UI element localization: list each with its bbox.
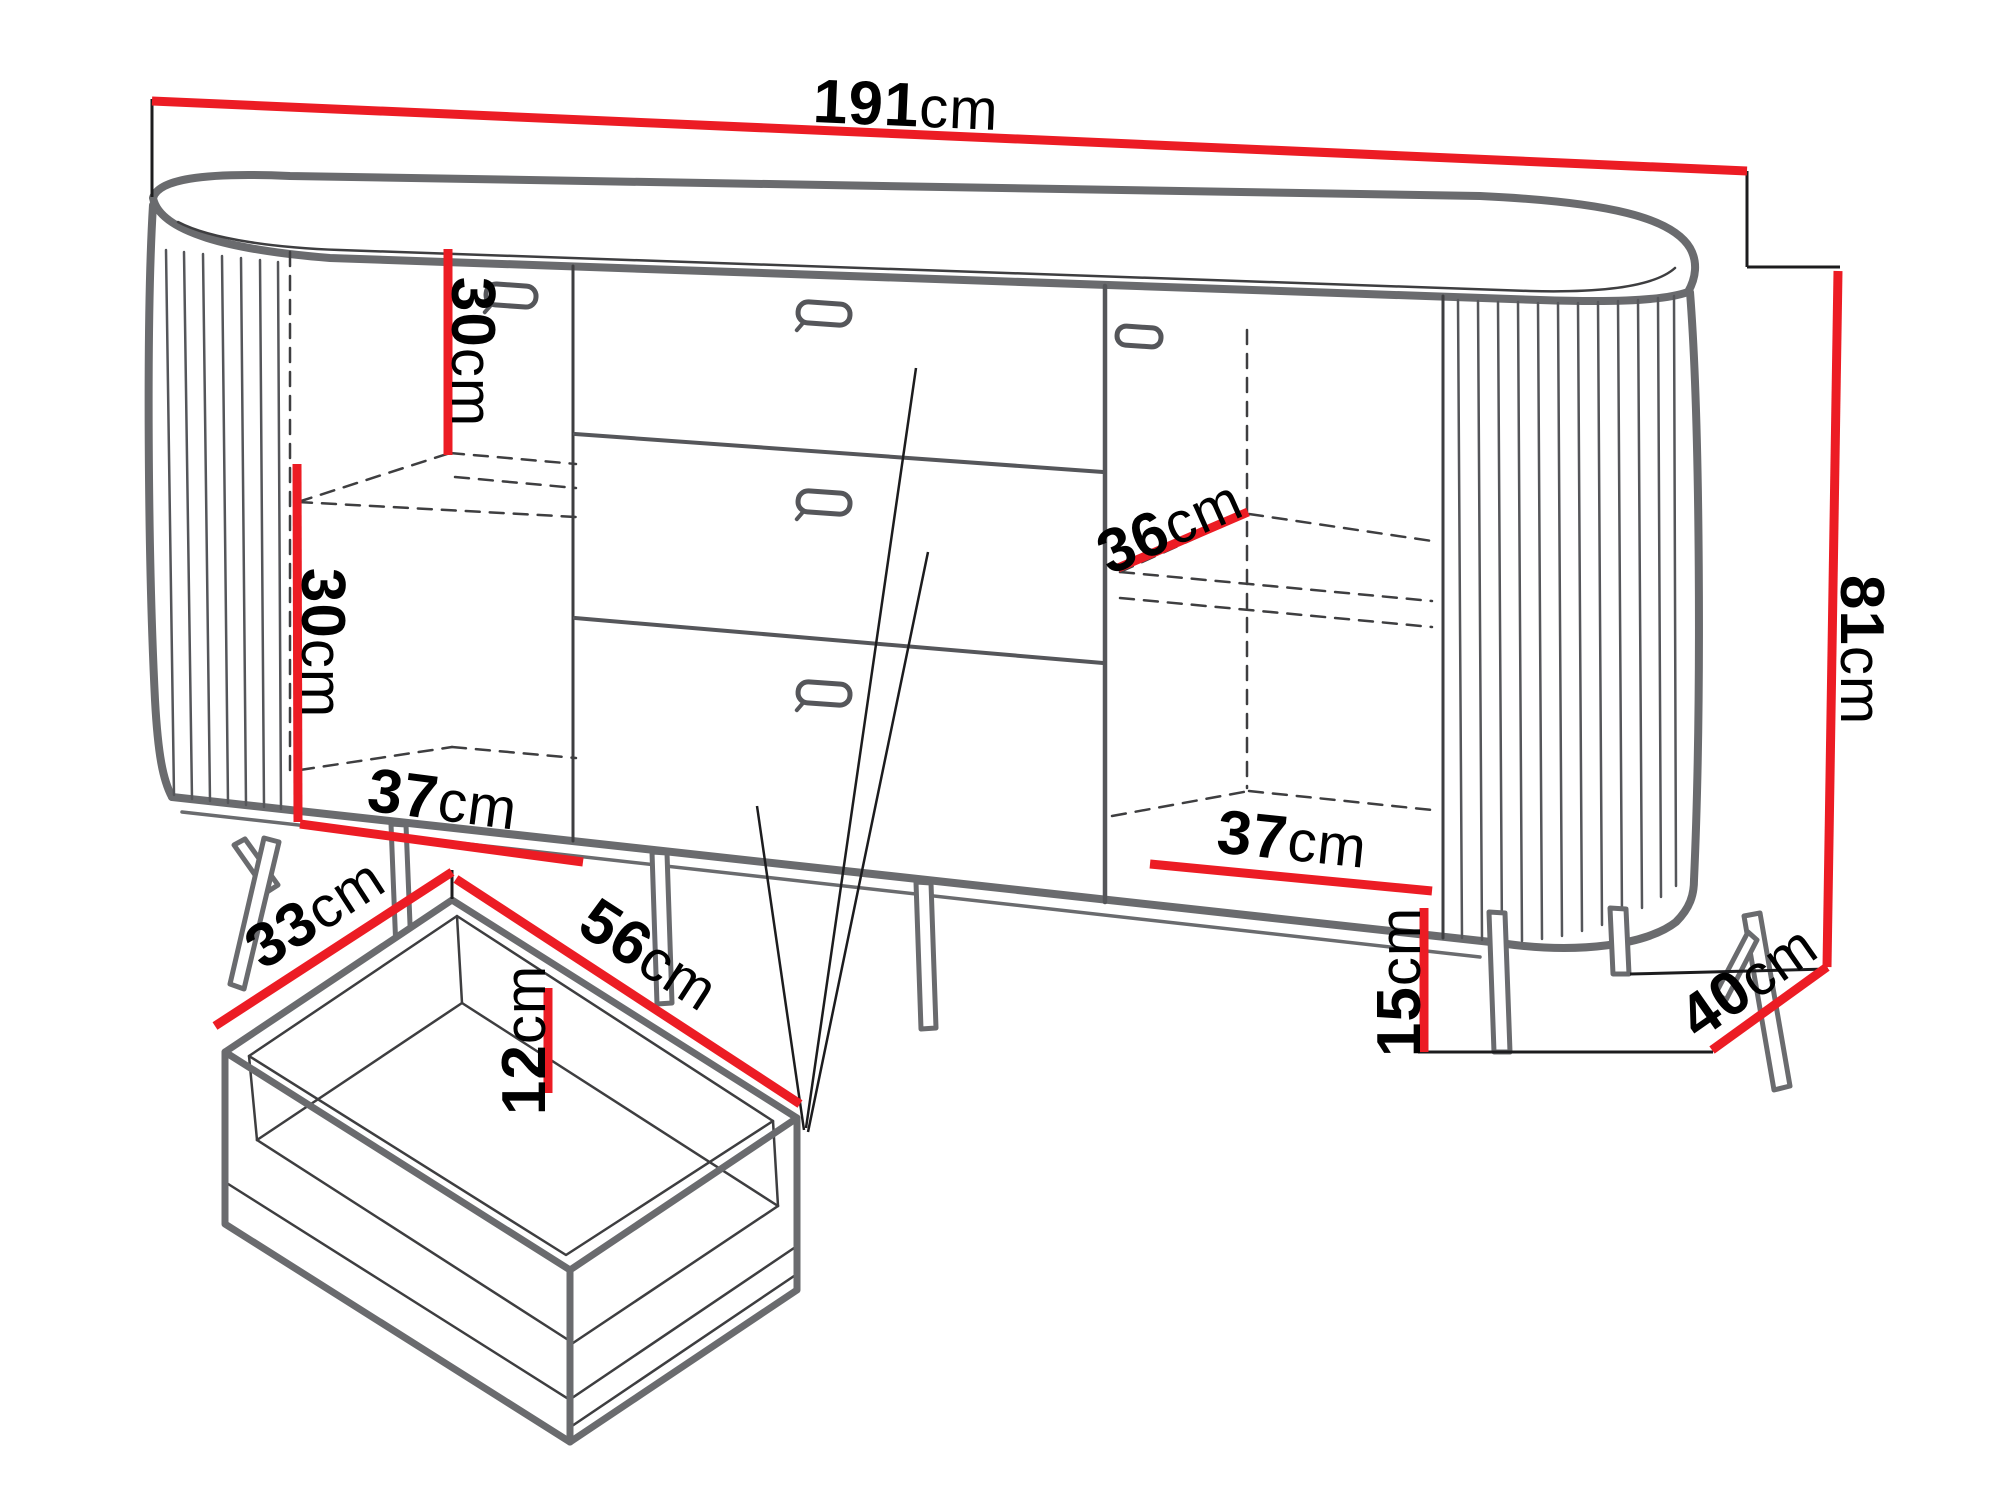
fluted-panel-right <box>1458 296 1676 941</box>
fluted-panel-left <box>166 250 281 809</box>
dim-label-lower-shelf-height: 30cm <box>288 568 357 718</box>
dim-label-drawer-height: 12cm <box>490 965 559 1115</box>
handles <box>485 283 1162 713</box>
dim-label-leg-height: 15cm <box>1365 907 1434 1057</box>
drawer3-handle-icon <box>797 681 851 714</box>
right-compartment-interior <box>1112 330 1432 816</box>
dim-label-right-shelf-depth: 36cm <box>1087 464 1252 588</box>
leg-4 <box>916 882 936 1029</box>
leader-line-drawer1 <box>806 368 916 1128</box>
cabinet-top-slab <box>153 175 1695 301</box>
dim-label-total-height: 81cm <box>1827 575 1896 725</box>
leg-5 <box>1489 912 1510 1052</box>
furniture-diagram: 191cm 81cm 30cm 30cm 37cm 36cm 37cm 15cm… <box>0 0 2000 1500</box>
leg-6 <box>1610 908 1629 974</box>
dim-label-total-width: 191cm <box>812 67 1001 144</box>
diagram-canvas: 191cm 81cm 30cm 30cm 37cm 36cm 37cm 15cm… <box>0 0 2000 1500</box>
cabinet-right-edge <box>1690 292 1699 880</box>
drawer1-handle-icon <box>797 301 851 334</box>
dim-label-upper-shelf-height: 30cm <box>438 277 507 427</box>
drawer-separator-1 <box>575 434 1103 472</box>
dim-label-left-compartment-width: 37cm <box>364 756 522 844</box>
drawer-separator-2 <box>575 618 1103 663</box>
leader-lines <box>757 368 928 1132</box>
drawer2-handle-icon <box>797 490 851 523</box>
right-door-handle-icon <box>1116 325 1161 347</box>
